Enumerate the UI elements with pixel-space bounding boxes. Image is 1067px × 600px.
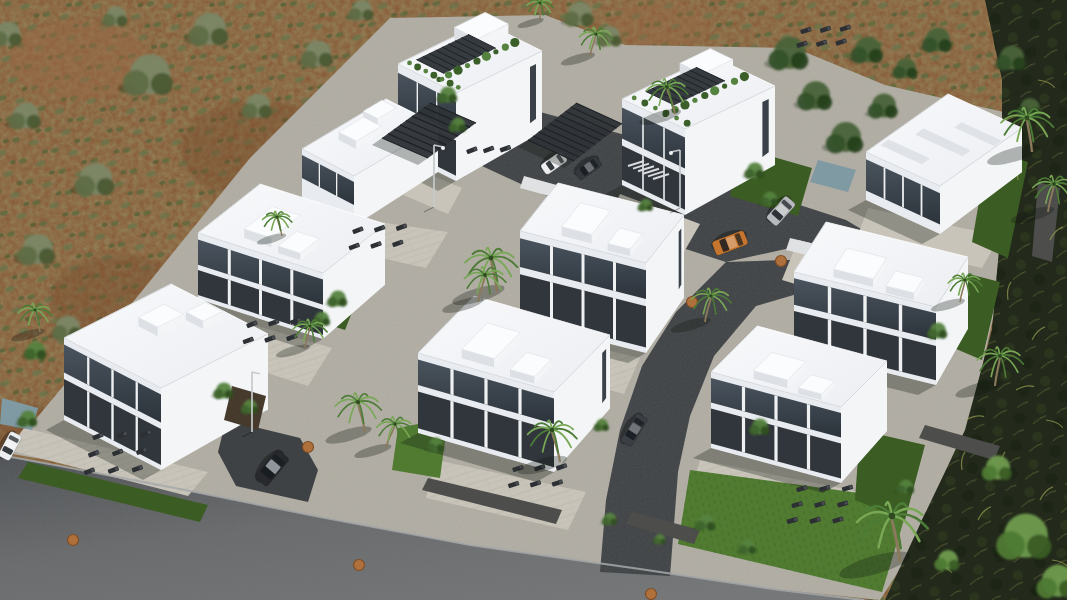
villa-f-mullion bbox=[136, 416, 138, 453]
villa-c-mullion bbox=[902, 176, 904, 208]
villa-b-mullion bbox=[663, 127, 665, 159]
evergreen-tree-crown bbox=[869, 49, 883, 63]
evergreen-tree-crown bbox=[885, 105, 898, 118]
garden-bush-crown bbox=[761, 197, 770, 206]
villa-e-mullion bbox=[259, 290, 262, 316]
manhole-cover bbox=[354, 560, 365, 571]
villa-j-mullion bbox=[742, 386, 745, 411]
villa-a-roof-plant bbox=[447, 80, 454, 87]
villa-g-mullion bbox=[613, 298, 616, 340]
villa-a-side-window bbox=[530, 64, 536, 123]
garden-bush-crown bbox=[897, 485, 906, 494]
villa-e-mullion bbox=[259, 259, 262, 285]
garden-bush-crown bbox=[594, 424, 602, 432]
garden-bush-crown bbox=[906, 486, 914, 494]
garden-tree-crown bbox=[1036, 578, 1057, 599]
villa-e-mullion bbox=[290, 269, 293, 295]
street-lamp-courtyard-light bbox=[669, 151, 673, 155]
villa-j-mullion bbox=[774, 426, 777, 462]
scrub-tree-crown bbox=[363, 10, 374, 21]
evergreen-tree-crown bbox=[868, 103, 884, 119]
garden-bush-crown bbox=[36, 350, 46, 360]
garden-bush-crown bbox=[660, 539, 666, 545]
villa-f-mullion bbox=[136, 382, 138, 411]
villa-h-mullion bbox=[450, 401, 453, 439]
villa-a-roof-plant bbox=[430, 72, 437, 79]
villa-j-mullion bbox=[774, 395, 777, 420]
garden-bush-crown bbox=[437, 93, 447, 103]
palm-crown-center bbox=[550, 428, 554, 432]
villa-a-roof-plant bbox=[482, 52, 491, 61]
garden-tree-crown bbox=[935, 558, 948, 571]
evergreen-tree-crown bbox=[939, 39, 952, 52]
scrub-tree-crown bbox=[151, 73, 173, 95]
garden-bush-crown bbox=[602, 518, 610, 526]
garden-bush-crown bbox=[646, 205, 653, 212]
manhole-cover bbox=[646, 589, 657, 600]
evergreen-tree-crown bbox=[768, 50, 789, 71]
villa-h-mullion bbox=[518, 420, 521, 458]
palm-crown-center bbox=[665, 85, 669, 89]
palm-crown-center bbox=[889, 513, 895, 519]
garden-bush-crown bbox=[938, 330, 947, 339]
villa-a-roof-plant bbox=[414, 64, 421, 71]
villa-j-mullion bbox=[742, 417, 745, 453]
villa-f-mullion bbox=[111, 369, 113, 398]
garden-bush-crown bbox=[427, 443, 436, 452]
villa-b-side-window bbox=[762, 99, 768, 157]
villa-b-roof-plant bbox=[740, 72, 749, 81]
garden-bush-crown bbox=[458, 124, 466, 132]
villa-f-mullion bbox=[111, 403, 113, 440]
manhole-cover bbox=[68, 535, 79, 546]
villa-f-mullion bbox=[87, 357, 89, 386]
villa-a-roof-plant bbox=[473, 57, 480, 64]
garden-bush-crown bbox=[739, 545, 748, 554]
evergreen-tree-crown bbox=[996, 55, 1012, 71]
evergreen-tree-crown bbox=[1013, 57, 1026, 70]
villa-d-mullion bbox=[319, 164, 320, 188]
villa-g-mullion bbox=[582, 290, 585, 332]
villa-b-roof-plant bbox=[710, 86, 719, 95]
villa-h-side-window bbox=[602, 349, 606, 403]
garden-tree-crown bbox=[999, 467, 1012, 480]
garden-bush-crown bbox=[695, 521, 705, 531]
scrub-tree-crown bbox=[39, 248, 56, 265]
garden-tree-crown bbox=[982, 465, 998, 481]
garden-bush-crown bbox=[602, 425, 609, 432]
scrub-tree-crown bbox=[319, 53, 333, 67]
villa-h-mullion bbox=[484, 410, 487, 448]
garden-bush-crown bbox=[224, 390, 233, 399]
villa-a-roof-plant bbox=[502, 44, 509, 51]
villa-b-roof-plant bbox=[632, 96, 637, 101]
scrub-tree-crown bbox=[349, 8, 362, 21]
villa-g-mullion bbox=[550, 246, 553, 276]
scrub-tree-crown bbox=[97, 178, 115, 196]
palm-crown-center bbox=[539, 2, 542, 5]
evergreen-tree-crown bbox=[797, 92, 815, 110]
palm-crown-center bbox=[1052, 182, 1056, 186]
manhole-cover bbox=[303, 442, 314, 453]
villa-j-mullion bbox=[807, 404, 810, 429]
evergreen-tree-crown bbox=[847, 136, 864, 153]
scrub-tree-crown bbox=[242, 103, 258, 119]
garden-bush-crown bbox=[744, 169, 754, 179]
garden-bush-crown bbox=[927, 329, 937, 339]
garden-bush-crown bbox=[449, 123, 458, 132]
villa-a-roof-plant bbox=[456, 85, 461, 90]
palm-crown-center bbox=[594, 32, 597, 35]
garden-bush-crown bbox=[760, 426, 769, 435]
garden-bush-crown bbox=[327, 297, 337, 307]
villa-i-mullion bbox=[899, 337, 902, 372]
palm-crown-center bbox=[998, 354, 1002, 358]
villa-b-roof-plant bbox=[684, 120, 691, 127]
garden-bush-crown bbox=[610, 519, 617, 526]
villa-a-roof-plant bbox=[445, 71, 452, 78]
garden-bush-crown bbox=[653, 538, 660, 545]
scrub-tree-crown bbox=[18, 246, 38, 266]
palm-crown-center bbox=[356, 400, 360, 404]
villa-e-mullion bbox=[228, 249, 231, 275]
palm-crown-center bbox=[393, 422, 396, 425]
garden-bush-crown bbox=[241, 405, 250, 414]
evergreen-tree-crown bbox=[850, 47, 867, 64]
evergreen-tree-crown bbox=[791, 52, 809, 70]
palm-crown-center bbox=[1025, 116, 1030, 121]
garden-tree-crown bbox=[1027, 535, 1051, 559]
aerial-villa-complex-render bbox=[0, 0, 1067, 600]
villa-b-mullion bbox=[663, 165, 665, 200]
scrub-tree-crown bbox=[103, 14, 116, 27]
street-lamp-center-light bbox=[441, 146, 445, 150]
garden-bush-crown bbox=[28, 418, 37, 427]
villa-i-mullion bbox=[899, 304, 902, 331]
palm-crown-center bbox=[308, 324, 311, 327]
villa-b-roof-plant bbox=[641, 100, 648, 107]
villa-c-mullion bbox=[884, 167, 886, 199]
street-lamp-f-light bbox=[259, 373, 263, 377]
villa-c-mullion bbox=[921, 184, 923, 216]
garden-bush-crown bbox=[755, 170, 764, 179]
villa-h-mullion bbox=[484, 378, 487, 405]
scrub-tree-crown bbox=[564, 11, 580, 27]
garden-tree-crown bbox=[996, 531, 1025, 560]
villa-a-roof-plant bbox=[440, 77, 445, 82]
scrub-tree-crown bbox=[188, 26, 209, 47]
garden-bush-crown bbox=[213, 389, 223, 399]
scrub-tree-crown bbox=[9, 33, 22, 46]
garden-bush-crown bbox=[24, 348, 36, 360]
garden-bush-crown bbox=[706, 522, 715, 531]
villa-g-mullion bbox=[613, 262, 616, 292]
scrub-tree-crown bbox=[581, 13, 594, 26]
villa-b-roof-plant bbox=[731, 78, 738, 85]
evergreen-tree-crown bbox=[826, 134, 846, 154]
scrub-tree-crown bbox=[259, 105, 272, 118]
soil-patch bbox=[610, 0, 710, 50]
palm-crown-center bbox=[33, 308, 36, 311]
palm-crown-center bbox=[489, 256, 494, 261]
garden-bush-crown bbox=[638, 204, 646, 212]
villa-b-roof-plant bbox=[653, 106, 658, 111]
scrub-tree-crown bbox=[27, 115, 41, 129]
scrub-tree-crown bbox=[300, 51, 317, 68]
garden-bush-crown bbox=[748, 546, 756, 554]
manhole-cover bbox=[776, 256, 787, 267]
evergreen-tree-crown bbox=[907, 68, 918, 79]
villa-g-side-window bbox=[679, 228, 682, 289]
villa-j-mullion bbox=[807, 434, 810, 470]
scene-svg bbox=[0, 0, 1067, 600]
palm-crown-center bbox=[963, 278, 966, 281]
villa-i-mullion bbox=[863, 295, 866, 322]
villa-h-mullion bbox=[518, 388, 521, 415]
scrub-tree-crown bbox=[8, 113, 25, 130]
villa-b-roof-plant bbox=[680, 100, 689, 109]
villa-b-roof-plant bbox=[692, 98, 697, 103]
garden-bush-crown bbox=[338, 298, 347, 307]
garden-bush-crown bbox=[448, 94, 457, 103]
villa-a-mullion bbox=[417, 82, 418, 114]
villa-f-mullion bbox=[87, 391, 89, 428]
villa-g-mullion bbox=[582, 254, 585, 284]
evergreen-tree-crown bbox=[817, 95, 832, 110]
villa-a-roof-plant bbox=[493, 49, 498, 54]
scrub-tree-crown bbox=[611, 36, 622, 47]
palm-crown-center bbox=[483, 273, 487, 277]
villa-h-mullion bbox=[450, 369, 453, 396]
evergreen-tree-crown bbox=[893, 66, 906, 79]
garden-bush-crown bbox=[436, 444, 444, 452]
garden-bush-crown bbox=[749, 425, 759, 435]
palm-crown-center bbox=[276, 216, 279, 219]
villa-a-roof-plant bbox=[465, 63, 470, 68]
scrub-tree-crown bbox=[123, 70, 149, 96]
villa-d-mullion bbox=[336, 173, 337, 197]
palm-crown-center bbox=[709, 294, 713, 298]
villa-b-roof-plant bbox=[722, 83, 727, 88]
scrub-tree-crown bbox=[74, 176, 95, 197]
villa-i-mullion bbox=[828, 287, 831, 314]
villa-b-roof-plant bbox=[701, 92, 708, 99]
garden-bush-crown bbox=[17, 417, 27, 427]
scrub-tree-crown bbox=[211, 28, 229, 46]
garden-tree-crown bbox=[949, 560, 960, 571]
villa-e-mullion bbox=[228, 280, 231, 306]
villa-a-roof-plant bbox=[453, 66, 462, 75]
villa-a-roof-plant bbox=[423, 69, 428, 74]
evergreen-tree-crown bbox=[922, 37, 938, 53]
villa-a-roof-plant bbox=[510, 38, 519, 47]
villa-a-roof-plant bbox=[407, 61, 412, 66]
scrub-tree-crown bbox=[117, 16, 128, 27]
garden-bush-crown bbox=[770, 198, 778, 206]
